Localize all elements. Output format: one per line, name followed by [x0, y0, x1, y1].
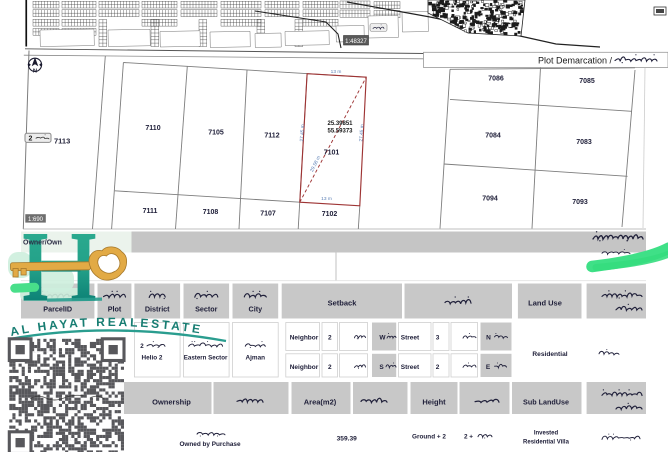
svg-text:7111: 7111	[143, 208, 158, 215]
svg-text:W: W	[379, 335, 386, 342]
svg-text:Neighbor: Neighbor	[290, 364, 319, 371]
svg-text:City: City	[249, 305, 263, 314]
svg-text:7093: 7093	[572, 199, 588, 206]
svg-text:7105: 7105	[208, 130, 224, 137]
svg-text:7084: 7084	[485, 133, 501, 140]
svg-text:2: 2	[29, 136, 33, 143]
svg-text:Neighbor: Neighbor	[290, 335, 319, 342]
svg-text:S: S	[379, 364, 384, 371]
svg-text:Helio 2: Helio 2	[142, 355, 163, 362]
svg-text:7094: 7094	[482, 196, 498, 203]
svg-text:7083: 7083	[576, 139, 592, 146]
svg-text:13 m: 13 m	[331, 69, 342, 75]
svg-text:Height: Height	[422, 398, 446, 407]
svg-text:29.58 m: 29.58 m	[309, 155, 322, 173]
svg-text:1:48327: 1:48327	[345, 39, 367, 45]
svg-text:Owner/Own: Owner/Own	[23, 240, 62, 247]
svg-text:7108: 7108	[203, 209, 219, 216]
svg-text:25.39851: 25.39851	[327, 121, 353, 127]
svg-text:2: 2	[328, 335, 332, 342]
svg-text:Residential: Residential	[532, 351, 567, 358]
svg-text:Ownership: Ownership	[152, 398, 191, 407]
svg-text:7112: 7112	[264, 133, 279, 140]
svg-text:Land Use: Land Use	[528, 299, 562, 308]
svg-text:7102: 7102	[322, 211, 338, 218]
svg-text:Area(m2): Area(m2)	[304, 398, 337, 407]
svg-text:Sub LandUse: Sub LandUse	[523, 398, 569, 407]
svg-text:7085: 7085	[579, 78, 595, 85]
svg-text:District: District	[145, 305, 170, 314]
svg-text:Setback: Setback	[328, 299, 358, 308]
svg-text:Owned by Purchase: Owned by Purchase	[179, 441, 241, 448]
svg-text:3: 3	[436, 335, 440, 342]
svg-text:55.59373: 55.59373	[327, 129, 353, 135]
svg-text:Residential Villa: Residential Villa	[523, 440, 570, 446]
svg-text:Ajman: Ajman	[246, 355, 266, 362]
svg-text:7101: 7101	[324, 150, 340, 157]
svg-text:2: 2	[328, 364, 332, 371]
svg-text:7113: 7113	[54, 137, 70, 146]
svg-text:Invested: Invested	[534, 431, 559, 437]
svg-text:Ground + 2: Ground + 2	[412, 434, 446, 441]
svg-text:7107: 7107	[260, 211, 276, 218]
svg-text:E: E	[486, 364, 491, 371]
svg-text:Plot: Plot	[108, 305, 122, 314]
svg-text:2: 2	[436, 364, 440, 371]
svg-text:27.45 m: 27.45 m	[299, 124, 306, 142]
svg-text:7086: 7086	[488, 76, 504, 83]
svg-text:27.45 m: 27.45 m	[358, 124, 365, 142]
svg-text:Street: Street	[401, 364, 420, 371]
svg-text:Eastern Sector: Eastern Sector	[184, 355, 228, 362]
svg-text:Plot Demarcation /: Plot Demarcation /	[538, 56, 613, 66]
svg-text:7110: 7110	[145, 125, 160, 132]
svg-text:ParcelID: ParcelID	[43, 305, 72, 314]
svg-text:Sector: Sector	[195, 305, 218, 314]
svg-text:2: 2	[140, 343, 144, 350]
svg-text:N: N	[486, 335, 491, 342]
svg-text:1:690: 1:690	[28, 217, 44, 223]
svg-text:N: N	[33, 68, 37, 74]
svg-text:2 +: 2 +	[464, 434, 473, 441]
svg-text:Street: Street	[401, 335, 420, 342]
svg-text:13 m: 13 m	[321, 196, 332, 202]
svg-text:359.39: 359.39	[337, 436, 358, 443]
